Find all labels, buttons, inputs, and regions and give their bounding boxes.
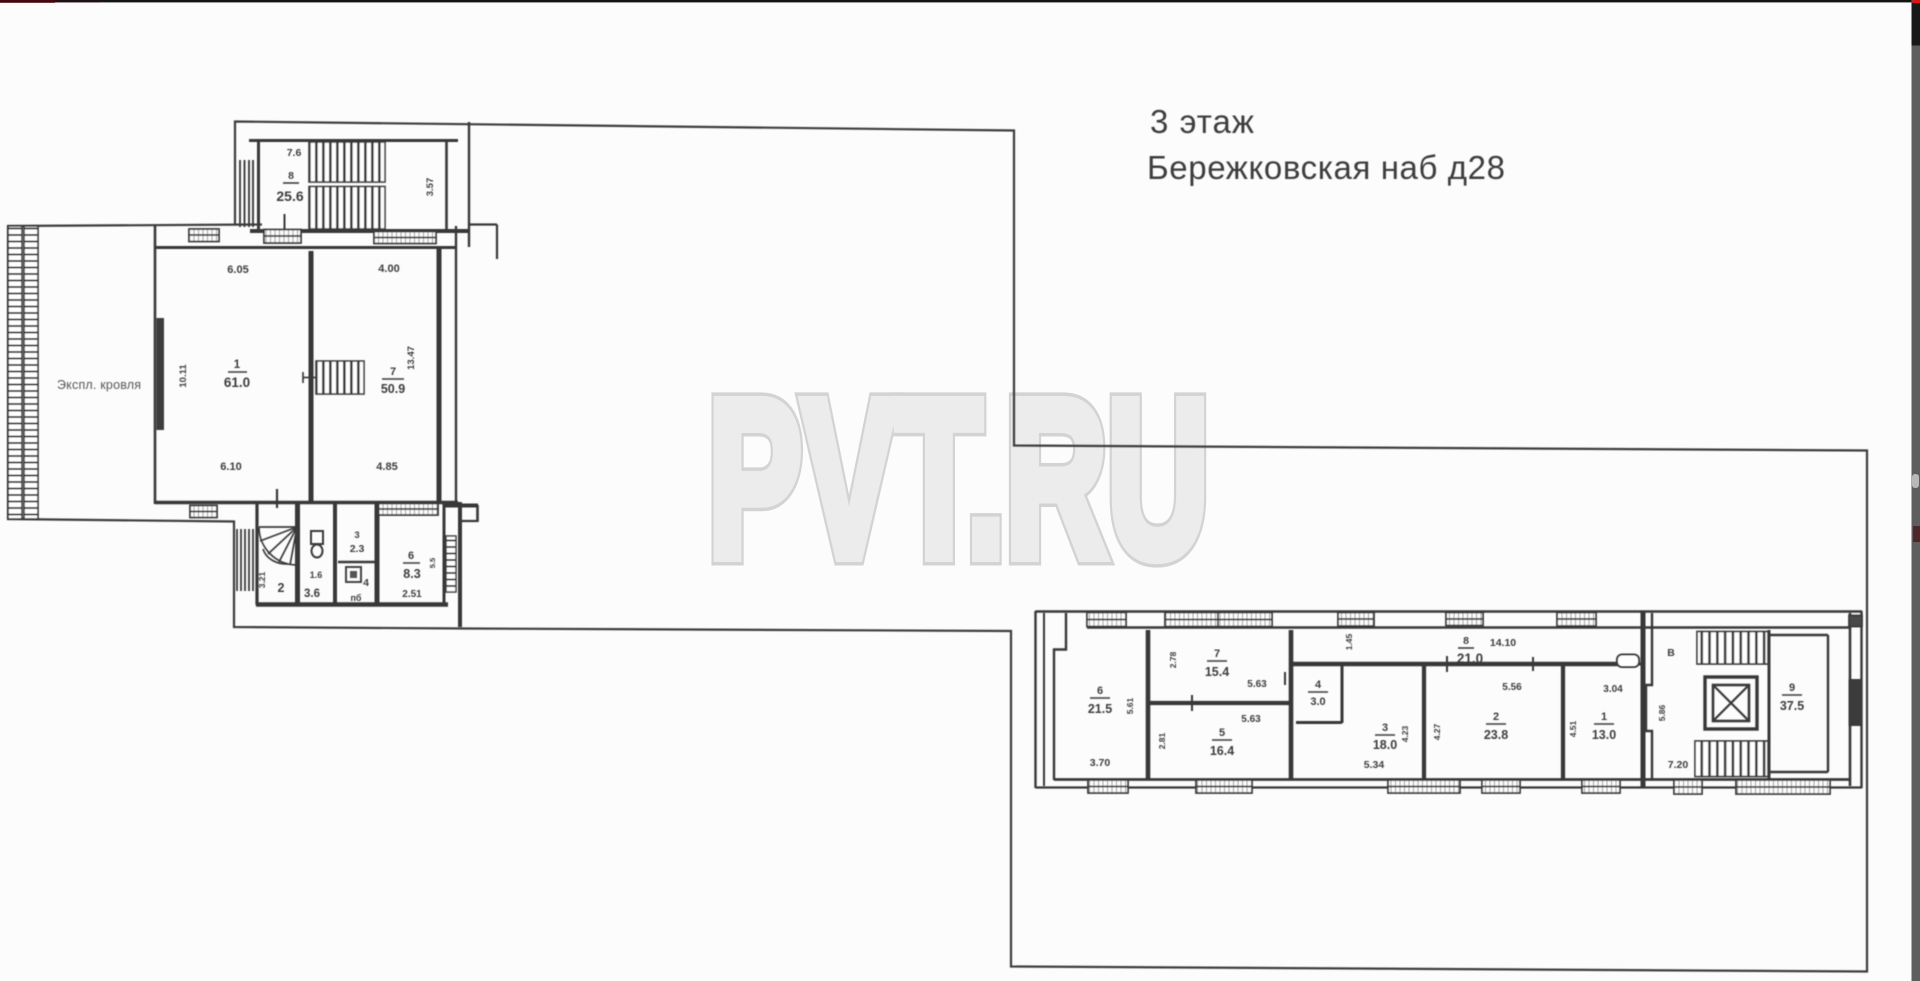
svg-text:пб: пб xyxy=(351,593,362,603)
svg-text:3.6: 3.6 xyxy=(304,588,320,600)
svg-text:3 этаж: 3 этаж xyxy=(1150,103,1254,140)
svg-text:Экспл. кровля: Экспл. кровля xyxy=(57,378,141,392)
svg-text:7: 7 xyxy=(1214,648,1220,660)
svg-text:3.70: 3.70 xyxy=(1090,757,1111,769)
svg-text:1.45: 1.45 xyxy=(1344,633,1354,650)
svg-text:7: 7 xyxy=(390,366,396,378)
svg-text:5.63: 5.63 xyxy=(1247,679,1267,690)
svg-text:4.00: 4.00 xyxy=(378,263,399,275)
svg-text:18.0: 18.0 xyxy=(1373,738,1397,752)
svg-text:8.3: 8.3 xyxy=(403,567,420,581)
svg-text:21.0: 21.0 xyxy=(1457,651,1483,666)
svg-text:2: 2 xyxy=(1493,711,1499,723)
svg-text:25.6: 25.6 xyxy=(276,188,303,204)
svg-text:3: 3 xyxy=(1382,722,1388,734)
svg-text:8: 8 xyxy=(288,170,294,182)
svg-text:3.21: 3.21 xyxy=(257,571,267,588)
svg-text:9: 9 xyxy=(1789,682,1795,694)
svg-text:15.4: 15.4 xyxy=(1205,665,1229,679)
svg-text:3.0: 3.0 xyxy=(1310,696,1325,708)
svg-text:5.56: 5.56 xyxy=(1502,682,1522,693)
svg-text:5.86: 5.86 xyxy=(1657,704,1667,721)
svg-text:16.4: 16.4 xyxy=(1210,744,1234,758)
svg-text:6: 6 xyxy=(1097,685,1103,697)
svg-text:14.10: 14.10 xyxy=(1490,637,1516,649)
svg-text:Бережковская наб д28: Бережковская наб д28 xyxy=(1147,149,1505,186)
svg-text:1: 1 xyxy=(1601,711,1607,723)
svg-text:PVT.RU: PVT.RU xyxy=(708,354,1209,604)
svg-text:2.81: 2.81 xyxy=(1157,732,1167,749)
svg-text:5.34: 5.34 xyxy=(1364,759,1385,771)
svg-text:3: 3 xyxy=(354,530,359,541)
svg-text:4: 4 xyxy=(363,577,369,589)
svg-text:61.0: 61.0 xyxy=(224,375,250,390)
svg-text:2.3: 2.3 xyxy=(350,543,365,555)
svg-text:2.51: 2.51 xyxy=(402,589,422,600)
svg-text:2: 2 xyxy=(278,581,285,595)
svg-text:13.47: 13.47 xyxy=(406,346,417,370)
svg-text:13.0: 13.0 xyxy=(1592,728,1616,742)
svg-text:23.8: 23.8 xyxy=(1484,728,1508,742)
svg-text:5.63: 5.63 xyxy=(1241,714,1261,725)
svg-text:4.27: 4.27 xyxy=(1432,723,1442,740)
svg-text:3.57: 3.57 xyxy=(425,178,436,197)
svg-text:2.78: 2.78 xyxy=(1168,651,1178,668)
svg-text:4.23: 4.23 xyxy=(1400,725,1410,742)
svg-text:10.11: 10.11 xyxy=(178,364,189,388)
svg-text:7.6: 7.6 xyxy=(287,147,302,159)
svg-text:4.51: 4.51 xyxy=(1568,720,1578,737)
svg-text:1.6: 1.6 xyxy=(310,570,323,580)
svg-text:21.5: 21.5 xyxy=(1088,702,1112,716)
svg-text:37.5: 37.5 xyxy=(1780,699,1804,713)
svg-text:5: 5 xyxy=(1219,727,1225,739)
svg-text:50.9: 50.9 xyxy=(381,382,405,396)
svg-text:В: В xyxy=(1667,647,1675,659)
svg-text:7.20: 7.20 xyxy=(1668,759,1689,771)
svg-text:3.04: 3.04 xyxy=(1603,684,1623,695)
svg-text:5.5: 5.5 xyxy=(428,558,437,568)
svg-text:5.61: 5.61 xyxy=(1125,697,1135,714)
svg-text:4.85: 4.85 xyxy=(376,461,397,473)
svg-text:4: 4 xyxy=(1315,679,1322,691)
svg-text:6: 6 xyxy=(408,550,414,562)
svg-text:1: 1 xyxy=(234,359,241,371)
svg-text:6.05: 6.05 xyxy=(227,264,248,276)
svg-text:8: 8 xyxy=(1463,635,1469,647)
svg-text:6.10: 6.10 xyxy=(220,461,241,473)
